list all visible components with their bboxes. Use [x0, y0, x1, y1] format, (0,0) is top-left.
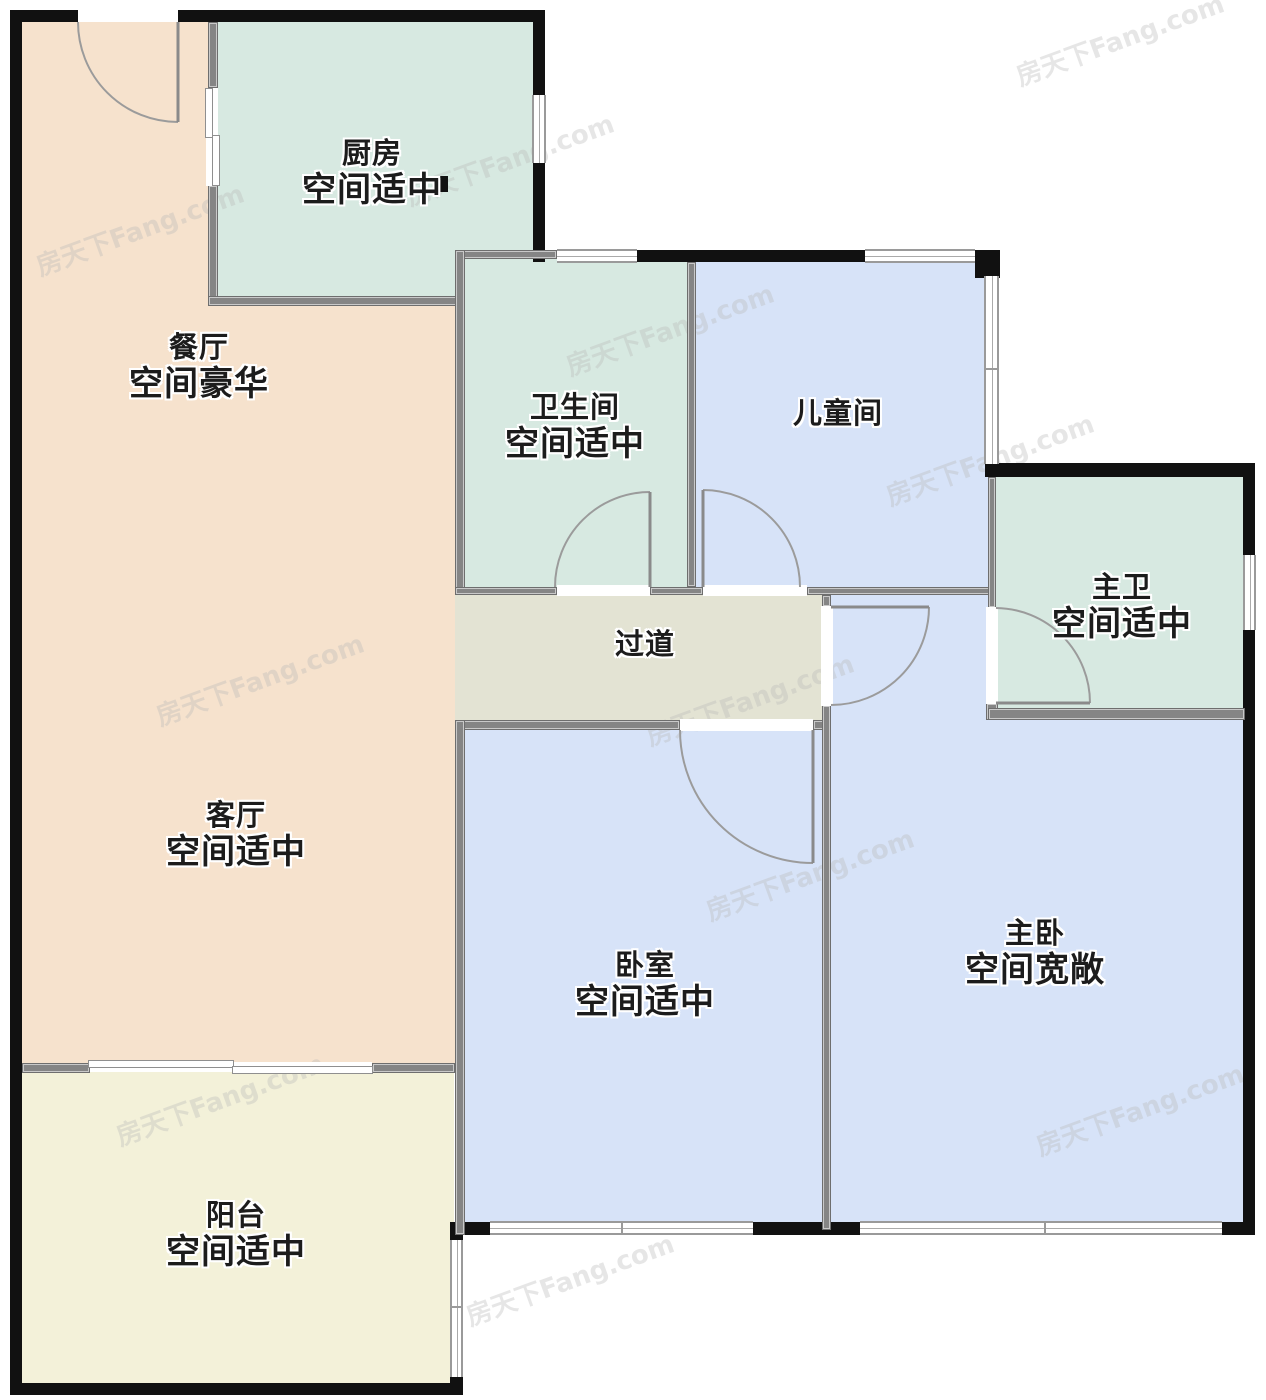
room-name: 客厅	[166, 798, 306, 832]
label-master-bedroom: 主卧 空间宽敞	[965, 916, 1105, 990]
master-bedroom-door-arc	[831, 607, 929, 705]
label-balcony: 阳台 空间适中	[166, 1198, 306, 1272]
label-kitchen: 厨房 空间适中	[302, 136, 442, 210]
room-name: 卫生间	[505, 390, 645, 424]
room-name: 阳台	[166, 1198, 306, 1232]
room-name: 过道	[615, 627, 675, 661]
label-master-bath: 主卫 空间适中	[1052, 570, 1192, 644]
room-name: 儿童间	[793, 396, 883, 430]
room-status: 空间适中	[1052, 604, 1192, 644]
label-hallway: 过道	[615, 627, 675, 661]
label-kids-room: 儿童间	[793, 396, 883, 430]
floor-plan: 房天下Fang.com 房天下Fang.com 房天下Fang.com 房天下F…	[0, 0, 1266, 1400]
room-name: 主卫	[1052, 570, 1192, 604]
room-status: 空间适中	[166, 832, 306, 872]
room-status: 空间适中	[505, 424, 645, 464]
room-status: 空间适中	[575, 982, 715, 1022]
label-living: 客厅 空间适中	[166, 798, 306, 872]
room-name: 主卧	[965, 916, 1105, 950]
label-dining: 餐厅 空间豪华	[129, 330, 269, 404]
room-status: 空间豪华	[129, 364, 269, 404]
kids-room-door-arc	[703, 490, 800, 587]
label-bedroom: 卧室 空间适中	[575, 948, 715, 1022]
room-name: 餐厅	[129, 330, 269, 364]
room-status: 空间宽敞	[965, 950, 1105, 990]
door-swings-overlay	[0, 0, 1266, 1400]
bedroom-door-arc	[680, 730, 813, 863]
room-name: 卧室	[575, 948, 715, 982]
entry-door-arc	[78, 22, 178, 122]
room-status: 空间适中	[166, 1232, 306, 1272]
label-bathroom: 卫生间 空间适中	[505, 390, 645, 464]
room-name: 厨房	[302, 136, 442, 170]
room-status: 空间适中	[302, 170, 442, 210]
bathroom-door-arc	[555, 492, 650, 587]
